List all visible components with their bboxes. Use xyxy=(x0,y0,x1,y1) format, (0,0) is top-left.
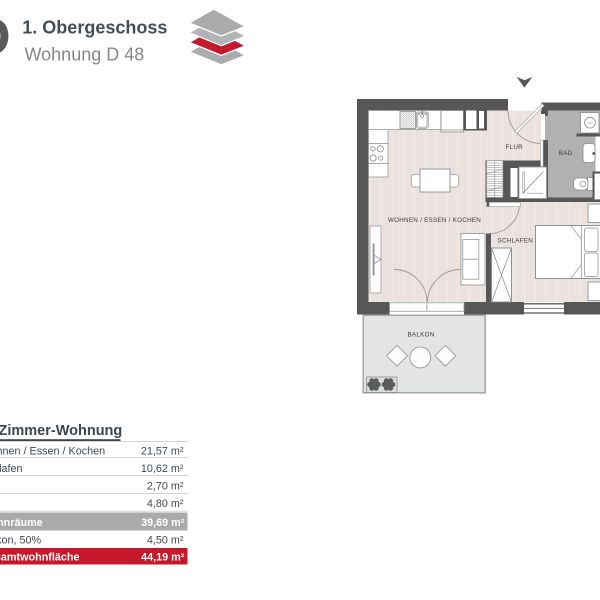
svg-text:Gesamtwohnfläche: Gesamtwohnfläche xyxy=(0,551,80,563)
svg-text:21,57 m²: 21,57 m² xyxy=(141,445,184,457)
svg-text:Balkon, 50%: Balkon, 50% xyxy=(0,534,42,546)
svg-text:WM: WM xyxy=(587,121,593,125)
svg-text:Schlafen: Schlafen xyxy=(0,463,23,475)
svg-text:BALKON: BALKON xyxy=(407,332,434,339)
svg-text:4,80 m²: 4,80 m² xyxy=(147,498,184,510)
svg-text:10,62 m²: 10,62 m² xyxy=(141,463,184,475)
svg-text:D: D xyxy=(0,5,11,67)
svg-text:2,70 m²: 2,70 m² xyxy=(147,480,184,492)
svg-text:WOHNEN / ESSEN / KOCHEN: WOHNEN / ESSEN / KOCHEN xyxy=(388,217,481,224)
svg-text:Wohnung D 48: Wohnung D 48 xyxy=(25,45,145,65)
svg-text:44,19 m²: 44,19 m² xyxy=(141,551,185,563)
svg-text:4,50 m²: 4,50 m² xyxy=(147,534,184,546)
svg-text:Wohnen / Essen / Kochen: Wohnen / Essen / Kochen xyxy=(0,445,105,457)
svg-text:Wohnräume: Wohnräume xyxy=(0,517,43,529)
svg-text:1. Obergeschoss: 1. Obergeschoss xyxy=(22,18,167,38)
svg-text:BAD: BAD xyxy=(559,150,573,157)
svg-text:FLUR: FLUR xyxy=(505,144,523,151)
svg-text:Zimmer-Wohnung: Zimmer-Wohnung xyxy=(0,423,122,439)
svg-text:39,69 m²: 39,69 m² xyxy=(141,517,185,529)
svg-text:SCHLAFEN: SCHLAFEN xyxy=(498,238,534,245)
